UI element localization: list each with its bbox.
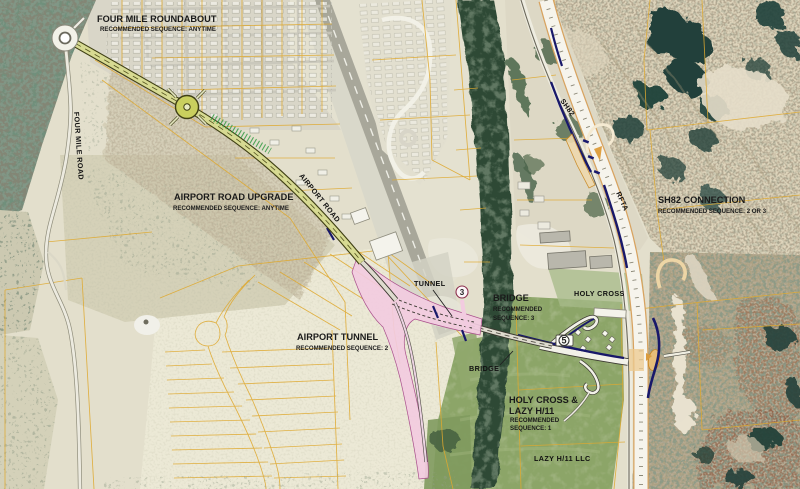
svg-text:AIRPORT TUNNEL: AIRPORT TUNNEL bbox=[297, 332, 379, 342]
svg-text:RECOMMENDED: RECOMMENDED bbox=[493, 306, 543, 313]
svg-text:HOLY CROSS &: HOLY CROSS & bbox=[509, 395, 578, 405]
svg-text:AIRPORT ROAD UPGRADE: AIRPORT ROAD UPGRADE bbox=[174, 192, 293, 202]
svg-text:BRIDGE: BRIDGE bbox=[469, 364, 499, 373]
svg-text:LAZY H/11 LLC: LAZY H/11 LLC bbox=[534, 454, 591, 463]
svg-text:3: 3 bbox=[460, 288, 465, 297]
svg-text:BRIDGE: BRIDGE bbox=[493, 293, 529, 303]
svg-text:SEQUENCE: 3: SEQUENCE: 3 bbox=[493, 315, 535, 322]
svg-text:TUNNEL: TUNNEL bbox=[414, 279, 446, 288]
svg-text:RECOMMENDED SEQUENCE: ANYTIM: RECOMMENDED SEQUENCE: ANYTIME bbox=[100, 26, 216, 33]
svg-text:FOUR MILE ROUNDABOUT: FOUR MILE ROUNDABOUT bbox=[97, 14, 217, 24]
svg-text:SEQUENCE: 1: SEQUENCE: 1 bbox=[510, 425, 552, 432]
svg-text:HOLY CROSS: HOLY CROSS bbox=[574, 289, 625, 298]
svg-text:5: 5 bbox=[561, 336, 566, 346]
svg-text:LAZY H/11: LAZY H/11 bbox=[509, 406, 554, 416]
svg-text:SH82 CONNECTION: SH82 CONNECTION bbox=[658, 195, 746, 205]
svg-text:RECOMMENDED: RECOMMENDED bbox=[510, 417, 560, 424]
svg-text:RECOMMENDED SEQUENCE: 2: RECOMMENDED SEQUENCE: 2 bbox=[296, 345, 389, 352]
svg-text:RECOMMENDED SEQUENCE: 2 OR 3: RECOMMENDED SEQUENCE: 2 OR 3 bbox=[658, 208, 767, 215]
svg-text:RECOMMENDED SEQUENCE: ANYTIM: RECOMMENDED SEQUENCE: ANYTIME bbox=[173, 205, 289, 212]
